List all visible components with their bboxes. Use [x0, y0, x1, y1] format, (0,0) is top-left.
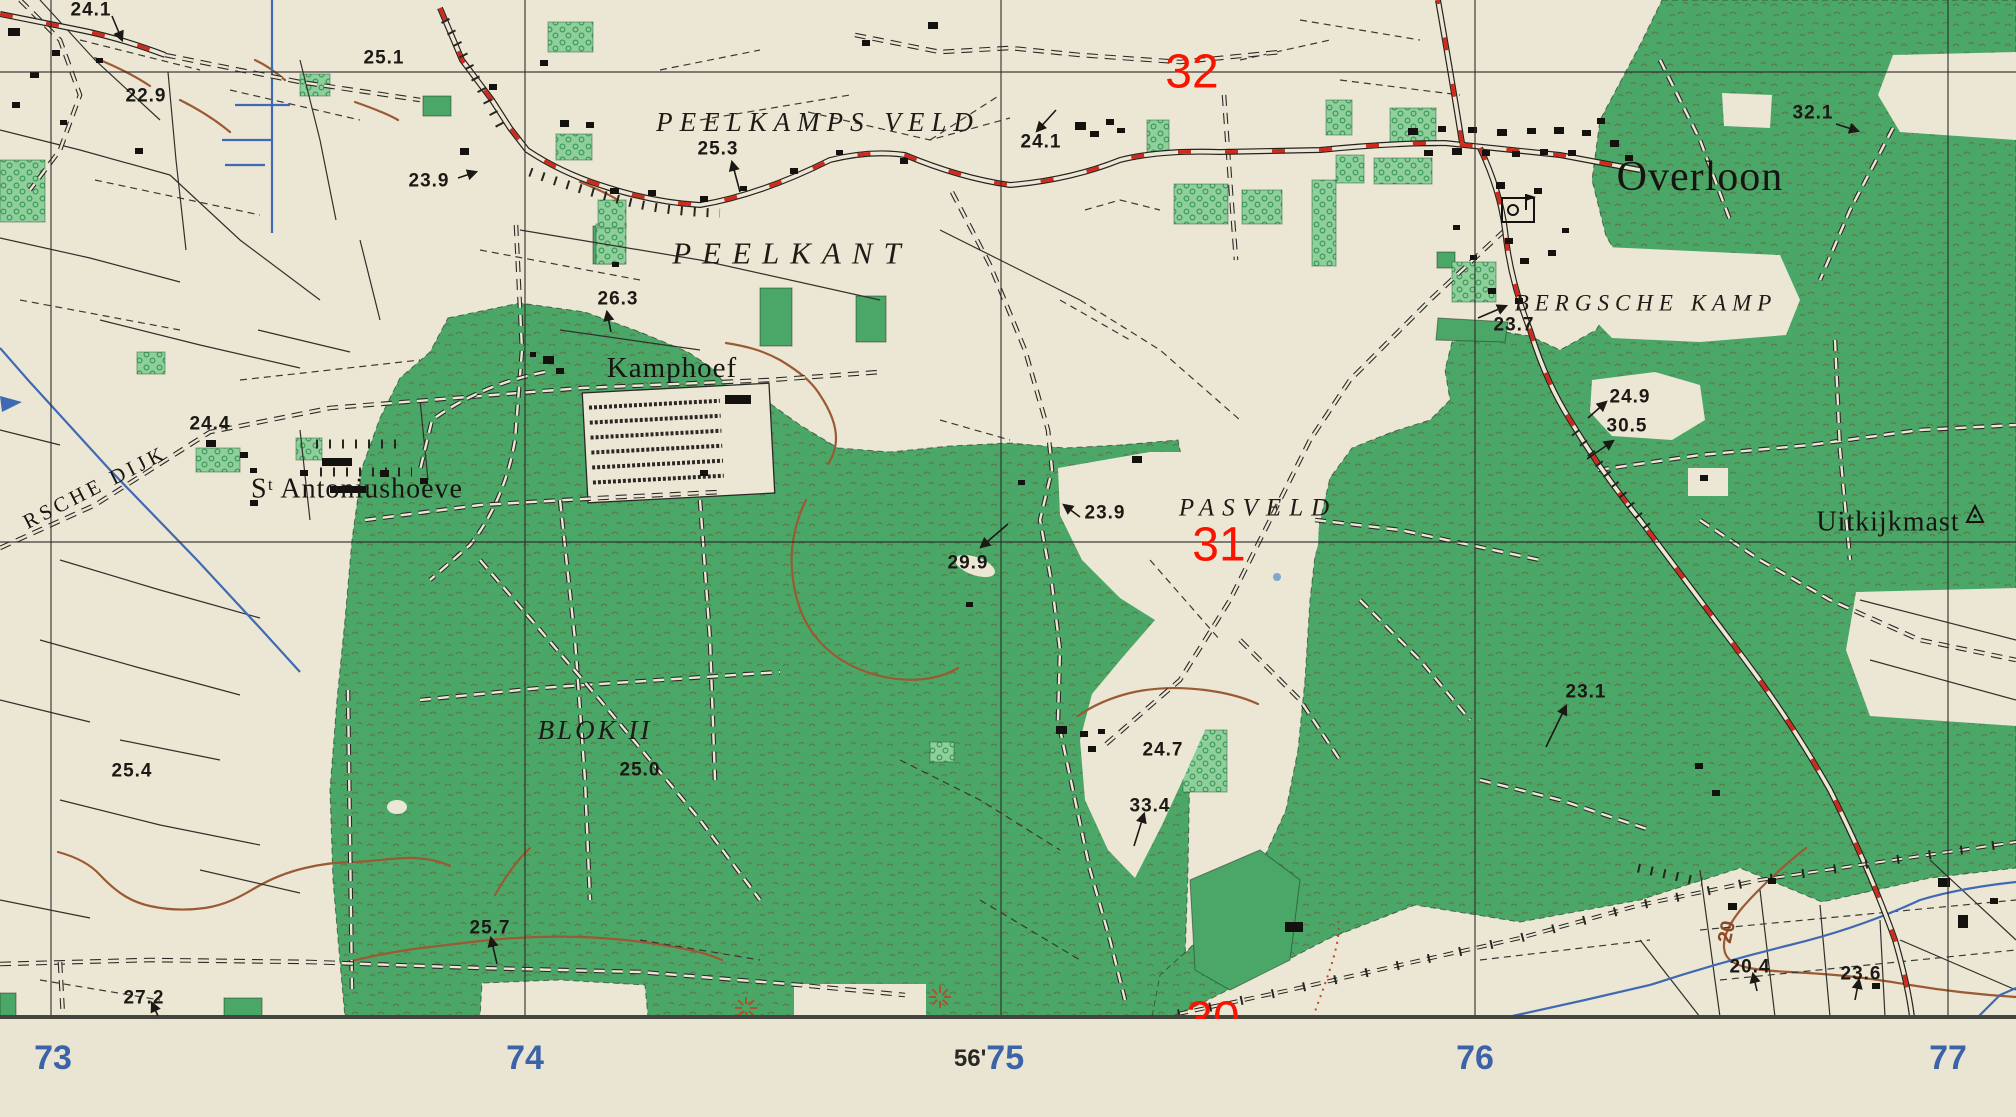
spot-height-label: 25.3 [698, 139, 739, 160]
place-label: Kamphoef [607, 352, 737, 384]
grid-easting-label-blue: 73 [34, 1039, 72, 1077]
spot-height-label: 25.0 [620, 760, 661, 781]
spot-height-label: 24.1 [71, 0, 112, 21]
place-label: BLOK II [538, 715, 653, 745]
grid-easting-label-blue: 56'75 [954, 1039, 1024, 1077]
spot-height-label: 23.7 [1494, 315, 1535, 336]
spot-height-label: 23.1 [1566, 682, 1607, 703]
spot-height-label: 29.9 [948, 553, 989, 574]
spot-height-label: 25.7 [470, 918, 511, 939]
topographic-map-canvas: PEELKAMPS VELDPEELKANTKamphoefOverloonBE… [0, 0, 2016, 1117]
place-label: PASVELD [1178, 495, 1337, 522]
map-sheet: PEELKAMPS VELDPEELKANTKamphoefOverloonBE… [0, 0, 2016, 1117]
spot-height-label: 22.9 [126, 86, 167, 107]
place-label: PEELKANT [671, 236, 912, 271]
grid-northing-label-red: 31 [1192, 519, 1245, 572]
spot-height-label: 26.3 [598, 289, 639, 310]
grid-easting-label-blue: 77 [1929, 1039, 1967, 1077]
spot-height-label: 33.4 [1130, 796, 1171, 817]
grid-easting-label-blue: 74 [506, 1039, 544, 1077]
place-label: BERGSCHE KAMP [1515, 291, 1778, 316]
spot-height-label: 20.4 [1730, 957, 1771, 978]
place-label: Overloon [1617, 154, 1784, 200]
contour-value-label: 20 [1714, 919, 1740, 945]
grid-northing-label-red: 32 [1165, 46, 1218, 99]
spot-height-label: 23.9 [1085, 503, 1126, 524]
place-label: Uitkijkmast [1816, 507, 1959, 538]
spot-height-label: 23.9 [409, 171, 450, 192]
place-label: PEELKAMPS VELD [655, 107, 980, 137]
spot-height-label: 27.2 [124, 988, 165, 1009]
spot-height-label: 24.7 [1143, 740, 1184, 761]
spot-height-label: 24.4 [190, 414, 231, 435]
spot-height-label: 25.4 [112, 761, 153, 782]
spot-height-label: 32.1 [1793, 103, 1834, 124]
spot-height-label: 30.5 [1607, 416, 1648, 437]
spot-height-label: 25.1 [364, 48, 405, 69]
grid-easting-label-blue: 76 [1456, 1039, 1494, 1077]
spot-height-label: 24.1 [1021, 132, 1062, 153]
spot-height-label: 23.6 [1841, 964, 1882, 985]
place-label: Sᵗ Antoniushoeve [251, 474, 463, 505]
spot-height-label: 24.9 [1610, 387, 1651, 408]
